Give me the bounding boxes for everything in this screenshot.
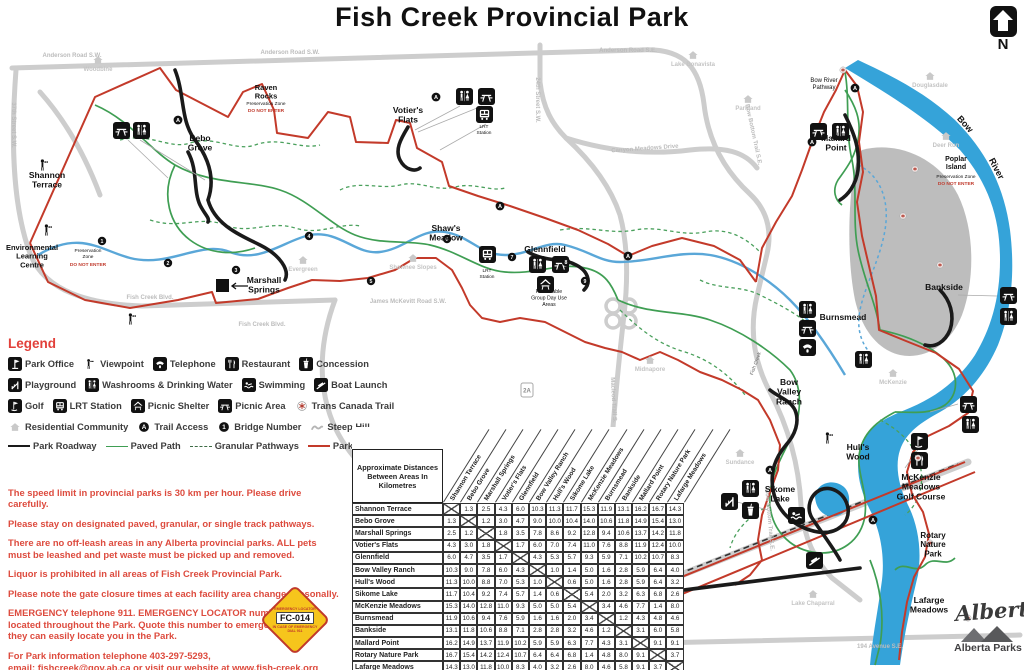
legend-row: Park OfficeViewpointTelephoneRestaurantC…: [8, 357, 353, 371]
distance-cell: 10.4: [460, 588, 477, 600]
distance-cell: 15.4: [460, 649, 477, 661]
trans-canada-trail-marker: [915, 455, 921, 461]
alberta-parks-logo: Alberta Parks: [953, 626, 1023, 654]
interchange: [606, 299, 636, 328]
distance-cell: 1.6: [546, 613, 563, 625]
legend-item-concession: Concession: [299, 357, 369, 371]
distance-cell: 2.6: [666, 588, 683, 600]
distance-cell: 13.1: [615, 503, 632, 515]
residential-community-marker: Shawnee Slopes: [389, 254, 437, 271]
distance-cell: 9.2: [477, 588, 494, 600]
community-label: Midnapore: [635, 367, 666, 373]
trail-access-marker: A: [766, 466, 775, 475]
distance-cell: 9.4: [477, 613, 494, 625]
distance-cell: 3.7: [649, 661, 666, 670]
distance-cell: 11.8: [615, 515, 632, 527]
distance-cell: 10.0: [495, 661, 512, 670]
distance-row-header: Bebo Grove: [352, 515, 443, 527]
community-label: Evergreen: [288, 267, 318, 273]
distance-row-header: McKenzie Meadows: [352, 601, 443, 613]
residential-community-marker: Douglasdale: [912, 72, 948, 89]
road-label: James McKevitt Road S.W.: [370, 299, 447, 305]
distance-diagonal-cell: [598, 613, 615, 625]
distance-cell: 3.2: [546, 661, 563, 670]
distance-cell: 8.6: [546, 527, 563, 539]
distance-cell: 12.8: [477, 601, 494, 613]
distance-cell: 1.6: [529, 613, 546, 625]
svg-text:7: 7: [511, 255, 514, 261]
granular-line-sample: [190, 446, 212, 447]
distance-cell: 8.0: [666, 601, 683, 613]
legend-line-label: Granular Pathways: [215, 441, 299, 451]
legend-item-bridge: 1Bridge Number: [217, 420, 301, 434]
distance-cell: 4.6: [598, 661, 615, 670]
distance-cell: 2.5: [443, 527, 460, 539]
distance-cell: 1.3: [443, 515, 460, 527]
legend-item-washrooms: Washrooms & Drinking Water: [85, 378, 233, 392]
trans-canada-trail-marker: [840, 67, 846, 73]
washrooms-icon: [799, 301, 816, 318]
distance-cell: 4.6: [666, 613, 683, 625]
road-label: Anderson Road S.W.: [260, 50, 319, 56]
distance-cell: 5.8: [615, 661, 632, 670]
swimming-icon: [788, 507, 805, 524]
road-label: Fish Creek Blvd.: [238, 322, 285, 328]
viewpoint-icon: [83, 357, 97, 371]
map-area-label: DO NOT ENTER: [938, 181, 975, 187]
distance-cell: 6.8: [649, 588, 666, 600]
svg-text:A: A: [176, 118, 180, 124]
map-area-label: Glennfield: [524, 244, 566, 254]
park-note: Please stay on designated paved, granula…: [8, 518, 340, 529]
picnic-icon: [113, 122, 130, 139]
picnic-icon: [960, 396, 977, 413]
legend-item-label: Playground: [25, 380, 76, 390]
marshall-springs-marker: [216, 279, 229, 292]
community-label: Woodbine: [84, 67, 114, 73]
trail-access-marker: A: [851, 84, 860, 93]
distance-cell: 16.7: [443, 649, 460, 661]
distance-cell: 1.8: [495, 527, 512, 539]
distance-cell: 2.0: [598, 588, 615, 600]
map-area-label: LRTStation: [477, 124, 492, 136]
distance-cell: 1.8: [477, 540, 494, 552]
distance-cell: 1.2: [477, 515, 494, 527]
map-area-label: Shaw'sMeadow: [429, 223, 463, 243]
trail-access-marker: A: [808, 138, 817, 147]
map-area-label: BowValleyRanch: [776, 377, 802, 406]
distance-cell: 2.8: [546, 625, 563, 637]
north-arrow-icon: [990, 6, 1017, 37]
distance-cell: 9.1: [632, 649, 649, 661]
distance-cell: 9.4: [598, 527, 615, 539]
svg-text:A: A: [853, 86, 857, 92]
distance-cell: 7.7: [632, 601, 649, 613]
distance-cell: 1.7: [495, 552, 512, 564]
distance-cell: 3.4: [581, 613, 598, 625]
legend-line-row: Park RoadwayPaved PathGranular PathwaysP…: [8, 441, 353, 451]
paved-line-sample: [106, 446, 128, 447]
road-label: Macleod Trail S.: [609, 377, 617, 423]
park-note: Liquor is prohibited in all areas of Fis…: [8, 568, 340, 579]
svg-text:9: 9: [584, 279, 587, 285]
distance-table: Approximate Distances Between Areas In K…: [352, 427, 684, 670]
golf-icon: [911, 433, 928, 450]
distance-cell: 5.7: [563, 552, 580, 564]
distance-cell: 13.0: [666, 515, 683, 527]
highway-shield: 2A: [521, 383, 533, 397]
distance-cell: 4.3: [598, 637, 615, 649]
legend-line-paved: Paved Path: [106, 441, 181, 451]
distance-diagonal-cell: [649, 649, 666, 661]
community-label: McKenzie: [879, 380, 907, 386]
north-label: N: [986, 37, 1020, 53]
legend-item-label: Telephone: [170, 359, 216, 369]
trans-canada-trail-marker: [937, 262, 943, 268]
distance-cell: 5.8: [666, 625, 683, 637]
distance-cell: 3.5: [477, 552, 494, 564]
distance-cell: 11.9: [598, 503, 615, 515]
distance-cell: 14.0: [581, 515, 598, 527]
legend-line-label: Paved Path: [131, 441, 181, 451]
park-note: The speed limit in provincial parks is 3…: [8, 487, 340, 510]
map-area-label: Preservation Zone: [936, 174, 976, 180]
distance-cell: 10.0: [546, 515, 563, 527]
distance-cell: 9.1: [666, 637, 683, 649]
distance-row-header: Marshall Springs: [352, 527, 443, 539]
distance-cell: 9.0: [460, 564, 477, 576]
telephone-icon: [153, 357, 167, 371]
legend-item-label: Trail Access: [154, 422, 208, 432]
trailaccess-icon: A: [137, 420, 151, 434]
distance-cell: 4.7: [512, 515, 529, 527]
distance-cell: 11.7: [443, 588, 460, 600]
svg-text:1: 1: [223, 424, 227, 431]
map-area-label: Bankside: [925, 282, 963, 292]
distance-cell: 3.4: [598, 601, 615, 613]
distance-row-header: Bow Valley Ranch: [352, 564, 443, 576]
park-note: There are no off-leash areas in any Albe…: [8, 537, 340, 560]
svg-text:A: A: [434, 95, 438, 101]
bridge-number-marker: 8: [562, 258, 570, 266]
distance-cell: 9.1: [632, 661, 649, 670]
distance-row-header: Lafarge Meadows: [352, 661, 443, 670]
svg-text:2A: 2A: [523, 389, 531, 395]
distance-cell: 7.4: [563, 540, 580, 552]
distance-cell: 5.9: [598, 552, 615, 564]
tct-icon: [295, 399, 309, 413]
svg-text:8: 8: [565, 260, 568, 266]
distance-cell: 6.0: [529, 540, 546, 552]
distance-cell: 4.0: [666, 564, 683, 576]
playground-icon: [8, 378, 22, 392]
restaurant-icon: [225, 357, 239, 371]
distance-cell: 13.0: [460, 661, 477, 670]
viewpoint-icon: [129, 313, 136, 324]
distance-cell: 4.0: [529, 661, 546, 670]
distance-cell: 8.0: [615, 649, 632, 661]
distance-cell: 4.6: [615, 601, 632, 613]
distance-cell: 1.2: [598, 625, 615, 637]
distance-cell: 3.5: [512, 527, 529, 539]
distance-cell: 8.3: [666, 552, 683, 564]
legend-row: GolfLRT StationPicnic ShelterPicnic Area…: [8, 399, 353, 413]
distance-cell: 1.4: [563, 564, 580, 576]
map-area-label: SikomeLake: [765, 484, 796, 504]
distance-cell: 10.0: [460, 576, 477, 588]
legend-item-restaurant: Restaurant: [225, 357, 291, 371]
legend-item-label: Viewpoint: [100, 359, 144, 369]
office-icon: [8, 357, 22, 371]
legend-item-trailaccess: ATrail Access: [137, 420, 208, 434]
road-label: 37th Street S.W.: [10, 102, 16, 148]
distance-cell: 11.0: [581, 540, 598, 552]
distance-cell: 11.7: [563, 503, 580, 515]
road-label: Anderson Road S.E.: [599, 48, 657, 54]
distance-cell: 8.8: [495, 625, 512, 637]
legend-item-lrt: LRT Station: [53, 399, 122, 413]
svg-text:A: A: [871, 518, 875, 524]
distance-cell: 6.0: [649, 625, 666, 637]
distance-cell: 11.8: [666, 527, 683, 539]
legend-item-golf: Golf: [8, 399, 44, 413]
distance-cell: 7.7: [581, 637, 598, 649]
distance-cell: 10.6: [598, 515, 615, 527]
distance-cell: 1.2: [615, 613, 632, 625]
distance-diagonal-cell: [477, 527, 494, 539]
legend-item-label: LRT Station: [70, 401, 122, 411]
distance-cell: 1.4: [529, 588, 546, 600]
road-label: Fish Creek Blvd.: [126, 295, 173, 301]
distance-cell: 7.8: [529, 527, 546, 539]
map-area-label: ShannonTerrace: [29, 170, 65, 190]
legend-item-residential: Residential Community: [8, 420, 128, 434]
distance-cell: 7.4: [495, 588, 512, 600]
distance-cell: 3.2: [615, 588, 632, 600]
distance-cell: 1.0: [546, 564, 563, 576]
svg-text:A: A: [768, 468, 772, 474]
svg-text:2: 2: [167, 261, 170, 267]
legend-item-label: Park Office: [25, 359, 74, 369]
distance-cell: 6.3: [563, 637, 580, 649]
bridge-number-marker: 3: [232, 266, 240, 274]
distance-cell: 9.3: [581, 552, 598, 564]
map-area-label: RotaryNaturePark: [920, 531, 946, 558]
golf-icon: [8, 399, 22, 413]
distance-row-header: Burnsmead: [352, 613, 443, 625]
map-area-label: Hull'sWood: [846, 442, 869, 462]
distance-cell: 15.3: [581, 503, 598, 515]
distance-cell: 3.0: [460, 540, 477, 552]
mountains-icon: [953, 626, 1023, 642]
svg-text:5: 5: [370, 279, 373, 285]
marshall-springs-arrow: [232, 283, 248, 289]
legend-item-label: Residential Community: [25, 422, 128, 432]
distance-cell: 4.8: [649, 613, 666, 625]
shelter-icon: [131, 399, 145, 413]
residential-community-marker: Sundance: [726, 449, 755, 466]
map-area-label: RavenRocks: [255, 83, 278, 101]
distance-cell: 7.1: [512, 625, 529, 637]
sign-dial-text: DIAL 911: [287, 629, 302, 633]
distance-cell: 5.4: [563, 601, 580, 613]
distance-cell: 4.3: [495, 503, 512, 515]
map-area-label: MallardPoint: [821, 133, 851, 153]
road-label: 24th Street S.W.: [534, 77, 540, 123]
map-area-label: Burnsmead: [820, 312, 867, 322]
legend-item-label: Picnic Area: [235, 401, 285, 411]
distance-cell: 5.9: [529, 637, 546, 649]
distance-cell: 12.8: [581, 527, 598, 539]
trans-canada-trail-marker: [900, 213, 906, 219]
residential-community-marker: McKenzie: [879, 369, 907, 386]
map-area-label: McKenzieMeadowsGolf Course: [897, 472, 946, 501]
distance-cell: 11.8: [477, 661, 494, 670]
washrooms-icon: [456, 88, 473, 105]
distance-cell: 6.0: [495, 564, 512, 576]
distance-cell: 0.6: [546, 588, 563, 600]
distance-diagonal-cell: [460, 515, 477, 527]
distance-cell: 4.3: [529, 552, 546, 564]
legend-item-shelter: Picnic Shelter: [131, 399, 210, 413]
map-area-label: PoplarIsland: [945, 156, 967, 171]
bridge-number-marker: 7: [508, 253, 516, 261]
distance-diagonal-cell: [512, 552, 529, 564]
sign-top-text: EMERGENCY LOCATOR: [274, 607, 316, 611]
distance-cell: 5.0: [546, 601, 563, 613]
distance-cell: 13.1: [443, 625, 460, 637]
distance-diagonal-cell: [615, 625, 632, 637]
legend-item-swimming: Swimming: [242, 378, 306, 392]
distance-cell: 4.3: [632, 613, 649, 625]
distance-cell: 7.8: [477, 564, 494, 576]
svg-text:A: A: [626, 254, 630, 260]
distance-diagonal-cell: [529, 564, 546, 576]
legend-row: PlaygroundWashrooms & Drinking WaterSwim…: [8, 378, 353, 392]
distance-cell: 3.0: [495, 515, 512, 527]
map-area-label: Preservation Zone: [246, 101, 286, 107]
legend-title: Legend: [8, 336, 353, 351]
distance-table-title: Approximate Distances Between Areas In K…: [352, 449, 443, 503]
distance-cell: 3.2: [563, 625, 580, 637]
distance-cell: 1.2: [460, 527, 477, 539]
distance-cell: 8.0: [581, 661, 598, 670]
legend-item-label: Boat Launch: [331, 380, 387, 390]
svg-text:4: 4: [308, 234, 311, 240]
road-label: Anderson Road S.W.: [42, 53, 101, 59]
distance-cell: 6.4: [649, 576, 666, 588]
legend-line-granular: Granular Pathways: [190, 441, 299, 451]
map-area-label: BeboGrove: [188, 133, 213, 153]
distance-cell: 10.7: [512, 649, 529, 661]
map-area-label: DO NOT ENTER: [248, 108, 285, 114]
distance-cell: 11.3: [546, 503, 563, 515]
distance-cell: 6.4: [546, 649, 563, 661]
distance-cell: 2.5: [477, 503, 494, 515]
distance-cell: 8.8: [615, 540, 632, 552]
legend-item-picnic: Picnic Area: [218, 399, 285, 413]
svg-text:3: 3: [235, 268, 238, 274]
picnic-icon: [799, 320, 816, 337]
distance-cell: 8.3: [512, 661, 529, 670]
bridge-number-marker: 5: [367, 277, 375, 285]
washrooms-icon: [1000, 308, 1017, 325]
legend-item-telephone: Telephone: [153, 357, 216, 371]
distance-cell: 13.7: [477, 637, 494, 649]
distance-diagonal-cell: [563, 588, 580, 600]
residential-community-marker: Evergreen: [288, 256, 318, 273]
distance-cell: 5.9: [512, 613, 529, 625]
distance-cell: 14.3: [443, 661, 460, 670]
bridge-icon: 1: [217, 420, 231, 434]
distance-cell: 10.6: [615, 527, 632, 539]
distance-row-header: Sikome Lake: [352, 588, 443, 600]
residential-icon: [8, 420, 22, 434]
distance-cell: 2.0: [563, 613, 580, 625]
distance-cell: 12.4: [495, 649, 512, 661]
distance-cell: 14.2: [477, 649, 494, 661]
park-note: email: fishcreek@gov.ab.ca or visit our …: [8, 662, 340, 670]
trail-access-marker: A: [174, 116, 183, 125]
distance-cell: 5.9: [632, 564, 649, 576]
distance-cell: 3.1: [615, 637, 632, 649]
distance-cell: 4.3: [512, 564, 529, 576]
distance-cell: 10.3: [443, 564, 460, 576]
distance-row-header: Shannon Terrace: [352, 503, 443, 515]
community-label: Shawnee Slopes: [389, 265, 437, 271]
distance-cell: 7.0: [546, 540, 563, 552]
picnic-icon: [1000, 287, 1017, 304]
community-label: Lake Bonavista: [671, 62, 716, 68]
concession-icon: [742, 502, 759, 519]
washrooms-icon: [962, 416, 979, 433]
distance-cell: 7.1: [615, 552, 632, 564]
distance-cell: 14.9: [460, 637, 477, 649]
distance-cell: 10.0: [666, 540, 683, 552]
map-area-label: DO NOT ENTER: [70, 262, 107, 268]
distance-row-header: Mallard Point: [352, 637, 443, 649]
distance-cell: 5.9: [546, 637, 563, 649]
distance-cell: 4.7: [460, 552, 477, 564]
distance-cell: 9.2: [563, 527, 580, 539]
distance-cell: 9.3: [512, 601, 529, 613]
distance-cell: 2.8: [615, 576, 632, 588]
svg-text:A: A: [142, 424, 147, 431]
distance-cell: 1.4: [581, 649, 598, 661]
bridge-number-marker: 1: [98, 237, 106, 245]
distance-cell: 7.0: [495, 576, 512, 588]
distance-cell: 6.0: [443, 552, 460, 564]
alberta-wordmark: Alberta: [954, 595, 1024, 626]
distance-diagonal-cell: [546, 576, 563, 588]
steephill-icon: [310, 420, 324, 434]
sign-code: FC-014: [276, 612, 314, 624]
distance-diagonal-cell: [666, 661, 683, 670]
trans-canada-trail-marker: [912, 166, 918, 172]
distance-cell: 16.2: [443, 637, 460, 649]
distance-cell: 12.4: [649, 540, 666, 552]
distance-cell: 6.3: [632, 588, 649, 600]
distance-cell: 15.3: [443, 601, 460, 613]
distance-cell: 11.8: [460, 625, 477, 637]
legend-item-label: Bridge Number: [234, 422, 301, 432]
distance-cell: 2.6: [563, 661, 580, 670]
community-label: Deer Run: [933, 143, 960, 149]
legend-row: Residential CommunityATrail Access1Bridg…: [8, 420, 353, 434]
viewpoint-icon: [826, 432, 833, 443]
distance-cell: 10.2: [512, 637, 529, 649]
washrooms-icon: [855, 351, 872, 368]
